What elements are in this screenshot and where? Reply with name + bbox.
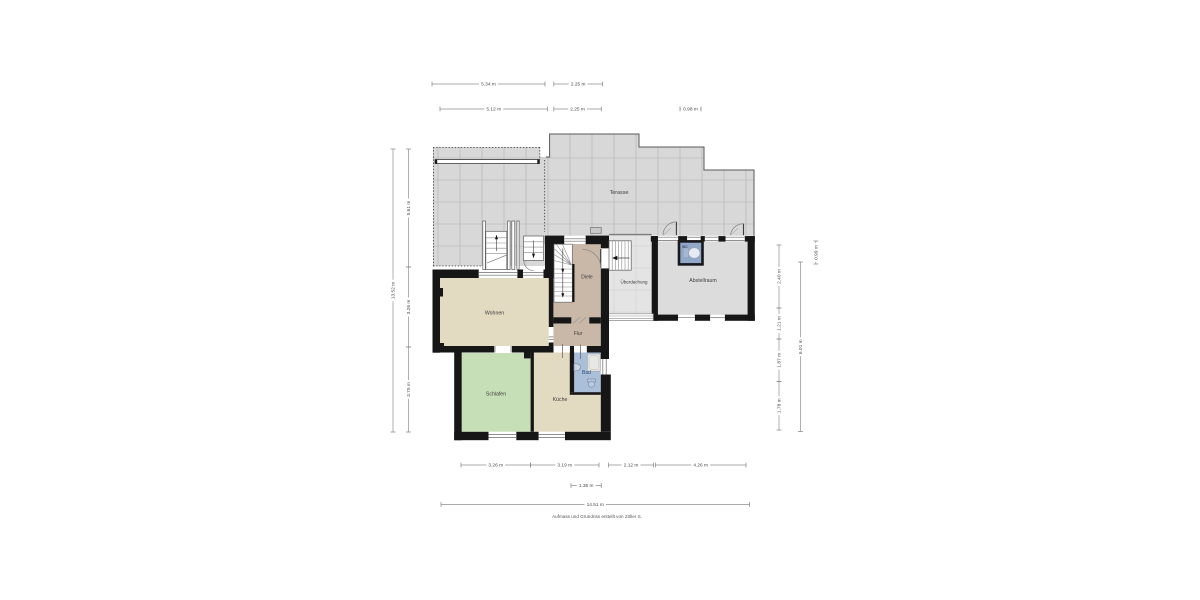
svg-text:4.26 m: 4.26 m xyxy=(693,463,708,469)
svg-text:Terasse: Terasse xyxy=(610,190,629,196)
svg-text:3.26 m: 3.26 m xyxy=(406,300,412,315)
svg-text:Aufmass und Grundriss erstellt: Aufmass und Grundriss erstellt von Zölle… xyxy=(552,514,642,519)
svg-text:1.78 m: 1.78 m xyxy=(777,398,783,413)
svg-text:Abstellraum: Abstellraum xyxy=(689,278,716,284)
svg-text:0.98 m: 0.98 m xyxy=(683,107,698,113)
svg-text:3.19 m: 3.19 m xyxy=(557,463,572,469)
svg-text:Überdachung: Überdachung xyxy=(620,279,648,285)
svg-text:3.26 m: 3.26 m xyxy=(488,463,503,469)
svg-text:6.01 m: 6.01 m xyxy=(798,339,804,354)
svg-text:Flur: Flur xyxy=(574,331,583,337)
svg-text:1.35 m: 1.35 m xyxy=(579,483,594,489)
svg-text:1.21 m: 1.21 m xyxy=(777,316,783,331)
svg-text:5.34 m: 5.34 m xyxy=(481,82,496,88)
svg-text:WC: WC xyxy=(682,245,688,249)
svg-text:Küche: Küche xyxy=(553,397,568,403)
svg-text:3.75 m: 3.75 m xyxy=(406,382,412,397)
svg-text:5.12 m: 5.12 m xyxy=(486,107,501,113)
svg-text:1.87 m: 1.87 m xyxy=(777,353,783,368)
svg-text:5.61 m: 5.61 m xyxy=(406,201,412,216)
svg-text:Bad: Bad xyxy=(582,370,591,376)
svg-text:2.12 m: 2.12 m xyxy=(624,463,639,469)
svg-text:2.25 m: 2.25 m xyxy=(571,82,586,88)
svg-text:14.51 m: 14.51 m xyxy=(587,502,604,508)
svg-text:Wohnen: Wohnen xyxy=(485,311,504,317)
svg-text:2.25 m: 2.25 m xyxy=(570,107,585,113)
svg-text:2.40 m: 2.40 m xyxy=(777,269,783,284)
svg-text:Diele: Diele xyxy=(581,275,593,281)
svg-text:0.99 m: 0.99 m xyxy=(814,245,820,260)
svg-text:Schlafen: Schlafen xyxy=(486,392,506,398)
svg-text:13.52 m: 13.52 m xyxy=(391,282,397,299)
